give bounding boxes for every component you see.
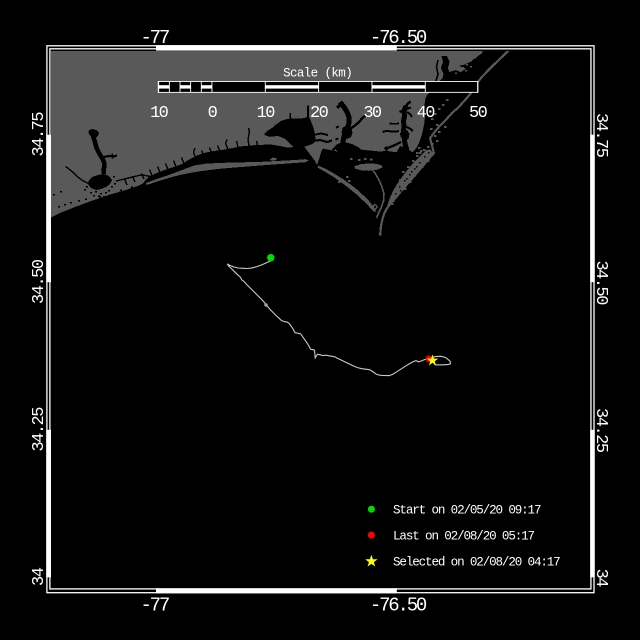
svg-text:Start on 02/05/20 09:17: Start on 02/05/20 09:17 [393,503,541,517]
svg-text:40: 40 [417,104,436,123]
svg-text:Last on 02/08/20 05:17: Last on 02/08/20 05:17 [393,529,535,543]
svg-text:0: 0 [208,104,218,123]
svg-text:34.75: 34.75 [30,112,49,157]
svg-text:34: 34 [591,569,610,588]
svg-text:-76.50: -76.50 [370,595,427,617]
svg-text:34.50: 34.50 [591,260,610,305]
svg-text:Scale (km): Scale (km) [283,66,352,80]
svg-text:50: 50 [469,104,488,123]
svg-text:34.50: 34.50 [30,259,49,304]
svg-text:Selected on 02/08/20 04:17: Selected on 02/08/20 04:17 [393,555,560,569]
svg-text:-76.50: -76.50 [370,27,427,49]
svg-text:30: 30 [363,104,382,123]
svg-text:34.25: 34.25 [30,407,49,452]
svg-text:-77: -77 [140,595,168,617]
svg-text:10: 10 [257,104,276,123]
svg-text:10: 10 [150,104,169,123]
svg-text:20: 20 [310,104,329,123]
svg-text:34: 34 [30,567,49,586]
svg-text:-77: -77 [140,27,168,49]
svg-text:34.25: 34.25 [591,408,610,453]
svg-text:34.75: 34.75 [591,113,610,158]
